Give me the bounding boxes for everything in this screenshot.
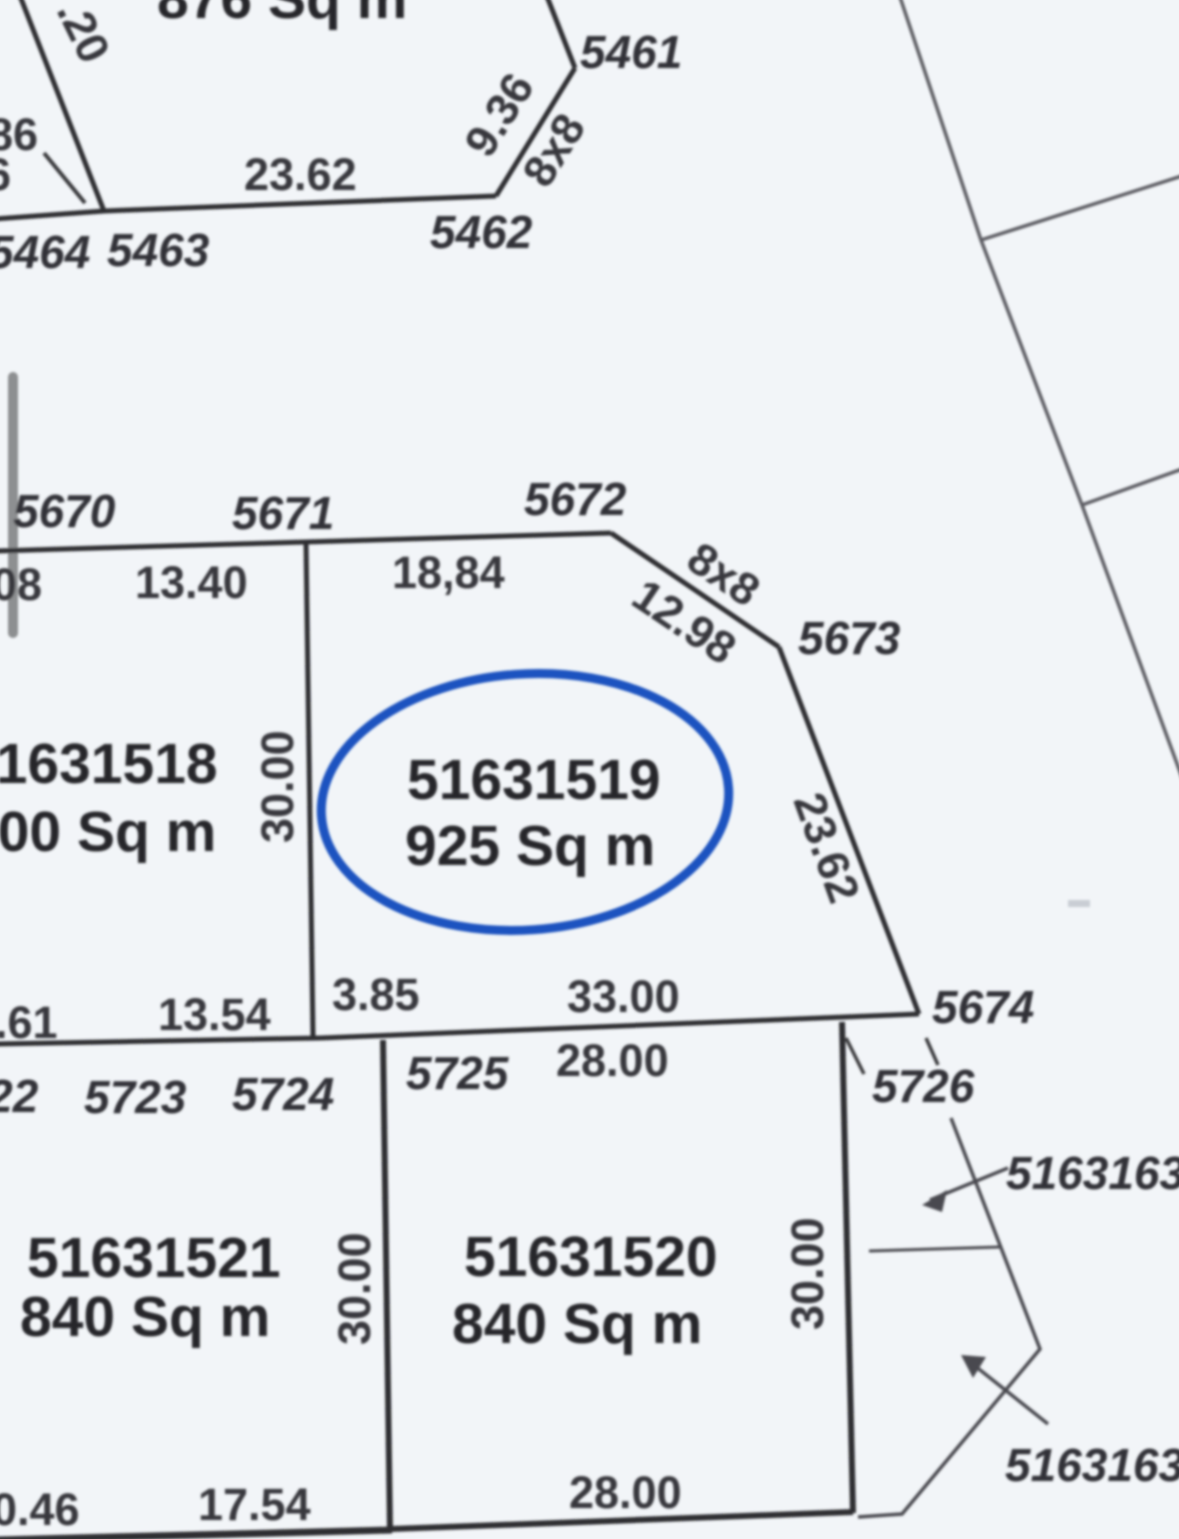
svg-text:18,84: 18,84	[392, 547, 505, 598]
svg-text:5723: 5723	[84, 1071, 187, 1123]
svg-text:840 Sq m: 840 Sq m	[452, 1292, 702, 1356]
svg-text:5461: 5461	[580, 26, 682, 78]
svg-text:5463: 5463	[107, 224, 210, 276]
svg-text:5670: 5670	[13, 485, 116, 537]
svg-text:51631518: 51631518	[0, 732, 218, 796]
svg-text:17.54: 17.54	[198, 1479, 311, 1530]
svg-text:28.00: 28.00	[556, 1035, 669, 1086]
svg-text:876 Sq m: 876 Sq m	[157, 0, 407, 31]
svg-text:3.85: 3.85	[332, 969, 420, 1020]
svg-text:5725: 5725	[406, 1047, 510, 1099]
svg-text:28.00: 28.00	[569, 1467, 682, 1518]
svg-text:13.54: 13.54	[158, 989, 271, 1040]
svg-text:51631521: 51631521	[27, 1226, 281, 1290]
svg-text:51631519: 51631519	[407, 748, 661, 812]
svg-text:900 Sq m: 900 Sq m	[0, 800, 216, 864]
svg-text:51631520: 51631520	[464, 1225, 718, 1289]
svg-text:13.40: 13.40	[135, 557, 248, 608]
svg-text:30.00: 30.00	[782, 1217, 833, 1330]
svg-text:5462: 5462	[430, 206, 533, 258]
svg-text:5674: 5674	[932, 981, 1034, 1033]
svg-text:08: 08	[0, 559, 42, 610]
svg-text:840 Sq m: 840 Sq m	[20, 1285, 270, 1349]
svg-text:5722: 5722	[0, 1070, 39, 1122]
svg-text:0.61: 0.61	[0, 997, 58, 1048]
svg-text:5671: 5671	[232, 487, 334, 539]
svg-text:925 Sq m: 925 Sq m	[405, 814, 655, 878]
svg-text:5672: 5672	[524, 473, 627, 525]
svg-text:51631633: 51631633	[1006, 1147, 1179, 1199]
svg-text:23.62: 23.62	[244, 149, 357, 200]
svg-text:51631633: 51631633	[1005, 1439, 1179, 1491]
svg-text:30.00: 30.00	[329, 1232, 380, 1345]
svg-text:5726: 5726	[872, 1060, 975, 1112]
svg-text:6: 6	[0, 149, 11, 200]
svg-text:5464: 5464	[0, 226, 90, 278]
svg-text:0.46: 0.46	[0, 1484, 80, 1535]
svg-text:30.00: 30.00	[252, 730, 303, 843]
svg-text:5673: 5673	[798, 612, 901, 664]
svg-text:33.00: 33.00	[567, 971, 680, 1022]
svg-text:5724: 5724	[232, 1068, 334, 1120]
